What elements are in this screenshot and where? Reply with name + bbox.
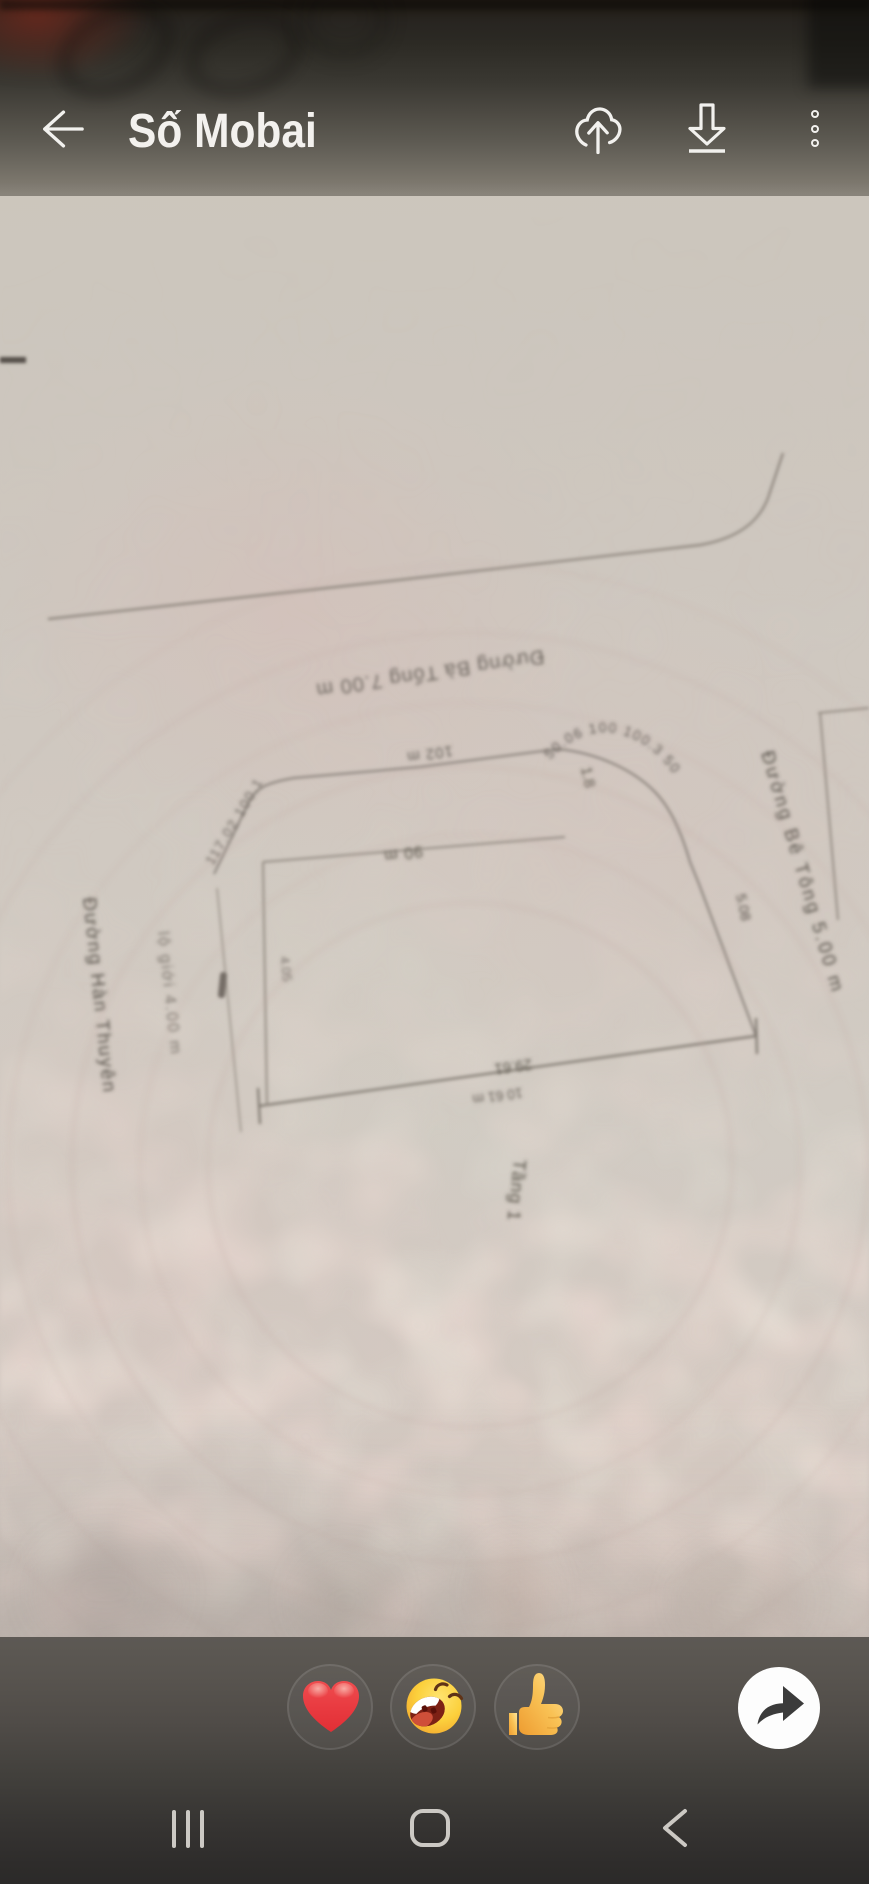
svg-text:Tầng 1: Tầng 1 [504,1159,530,1223]
svg-text:5.08: 5.08 [733,892,754,922]
svg-text:102 m: 102 m [405,742,454,765]
svg-text:117.02 100.1: 117.02 100.1 [202,775,267,868]
svg-text:lộ giới 4.00 m: lộ giới 4.00 m [154,931,184,1057]
svg-text:29.61: 29.61 [493,1055,533,1077]
svg-text:50.06 100 100.3 50: 50.06 100 100.3 50 [541,719,685,777]
svg-text:Đường Bà Tổng 7.00 m: Đường Bà Tổng 7.00 m [314,645,545,701]
svg-text:10 61 m: 10 61 m [471,1085,523,1108]
